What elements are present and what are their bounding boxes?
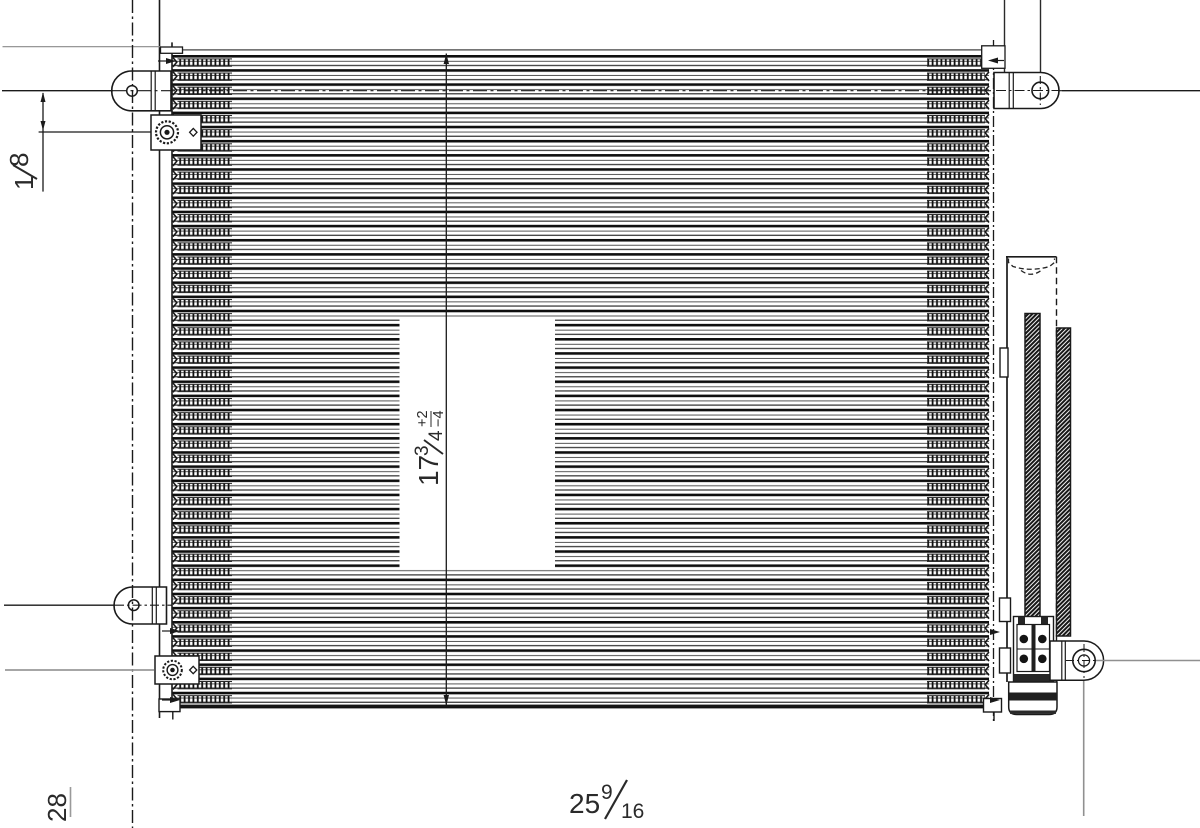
- svg-text:25: 25: [569, 788, 600, 819]
- svg-text:−4: −4: [431, 410, 447, 427]
- svg-text:+2: +2: [415, 410, 431, 427]
- svg-text:3: 3: [412, 445, 433, 456]
- svg-text:9: 9: [601, 781, 613, 804]
- svg-text:28: 28: [42, 793, 72, 822]
- svg-text:17: 17: [413, 455, 444, 486]
- svg-text:4: 4: [426, 430, 447, 441]
- svg-text:16: 16: [621, 800, 644, 823]
- svg-text:8: 8: [4, 153, 34, 167]
